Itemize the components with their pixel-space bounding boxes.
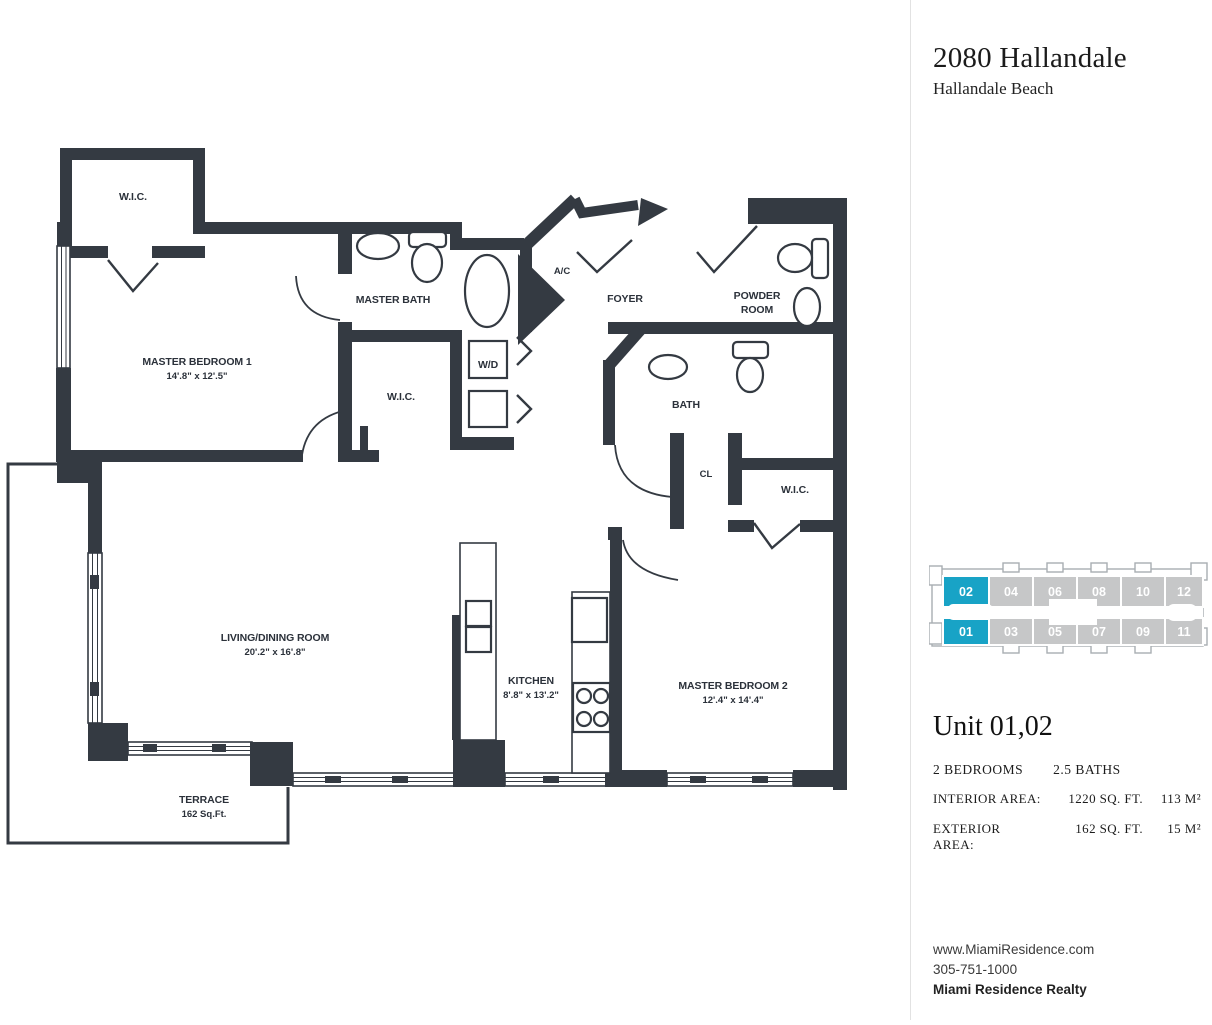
- room-dims-kitchen: 8'.8" x 13'.2": [503, 690, 559, 701]
- svg-text:06: 06: [1048, 585, 1062, 599]
- svg-text:02: 02: [959, 585, 973, 599]
- room-label-cl: CL: [700, 469, 713, 480]
- bath-fixtures: [649, 342, 768, 392]
- svg-text:09: 09: [1136, 625, 1150, 639]
- interior-area-sqft: 1220 SQ. FT.: [1043, 791, 1143, 807]
- floor-plan-svg: W.I.C. MASTER BEDROOM 1 14'.8" x 12'.5" …: [0, 0, 910, 1020]
- room-dims-master-bedroom-2: 12'.4" x 14'.4": [702, 695, 763, 706]
- room-label-wd: W/D: [478, 359, 499, 371]
- walls: [56, 148, 847, 790]
- svg-text:03: 03: [1004, 625, 1018, 639]
- keyplan: 02 04 06 08 10 12 01 03 05 07 09 11: [929, 560, 1209, 656]
- svg-text:10: 10: [1136, 585, 1150, 599]
- svg-text:08: 08: [1092, 585, 1106, 599]
- room-label-foyer: FOYER: [607, 293, 643, 305]
- svg-text:07: 07: [1092, 625, 1106, 639]
- floor-plan-panel: W.I.C. MASTER BEDROOM 1 14'.8" x 12'.5" …: [0, 0, 910, 1020]
- baths-value: 2.5 BATHS: [1053, 762, 1121, 777]
- contact-footer: www.MiamiResidence.com 305-751-1000 Miam…: [933, 940, 1094, 1000]
- room-area-terrace: 162 Sq.Ft.: [182, 809, 227, 820]
- exterior-area-row: EXTERIOR AREA: 162 SQ. FT. 15 M²: [933, 821, 1201, 853]
- room-label-powder-line1: POWDER: [734, 290, 781, 302]
- interior-area-m2: 113 M²: [1143, 791, 1201, 807]
- exterior-area-sqft: 162 SQ. FT.: [1043, 821, 1143, 853]
- svg-text:11: 11: [1177, 625, 1190, 639]
- unit-specs: 2 BEDROOMS2.5 BATHS INTERIOR AREA: 1220 …: [933, 762, 1201, 867]
- svg-text:05: 05: [1048, 625, 1062, 639]
- room-label-master-bedroom-2: MASTER BEDROOM 2: [678, 680, 788, 692]
- exterior-area-m2: 15 M²: [1143, 821, 1201, 853]
- room-label-kitchen: KITCHEN: [508, 675, 554, 687]
- room-label-terrace: TERRACE: [179, 794, 229, 806]
- phone-text: 305-751-1000: [933, 960, 1094, 980]
- bed-bath-row: 2 BEDROOMS2.5 BATHS: [933, 762, 1201, 778]
- company-name: Miami Residence Realty: [933, 980, 1094, 1000]
- kitchen-fixtures: [460, 341, 610, 773]
- building-subtitle: Hallandale Beach: [933, 79, 1053, 99]
- powder-room-fixtures: [778, 239, 828, 326]
- room-dims-master-bedroom-1: 14'.8" x 12'.5": [166, 371, 227, 382]
- room-label-living: LIVING/DINING ROOM: [221, 632, 330, 644]
- exterior-area-label: EXTERIOR AREA:: [933, 821, 1043, 853]
- room-label-master-bedroom-1: MASTER BEDROOM 1: [142, 356, 252, 368]
- room-label-ac: A/C: [554, 266, 571, 277]
- room-label-bath: BATH: [672, 399, 700, 411]
- room-dims-living: 20'.2" x 16'.8": [244, 647, 305, 658]
- bedrooms-value: 2 BEDROOMS: [933, 762, 1023, 777]
- svg-text:04: 04: [1004, 585, 1018, 599]
- interior-area-label: INTERIOR AREA:: [933, 791, 1043, 807]
- website-text: www.MiamiResidence.com: [933, 940, 1094, 960]
- svg-text:12: 12: [1177, 585, 1191, 599]
- room-label-master-bath: MASTER BATH: [356, 294, 431, 306]
- interior-area-row: INTERIOR AREA: 1220 SQ. FT. 113 M²: [933, 791, 1201, 807]
- unit-title: Unit 01,02: [933, 711, 1053, 743]
- room-label-wic3: W.I.C.: [781, 484, 809, 496]
- svg-text:01: 01: [959, 625, 973, 639]
- building-title: 2080 Hallandale: [933, 42, 1127, 75]
- room-label-wic1: W.I.C.: [119, 191, 147, 203]
- room-label-powder-line2: ROOM: [741, 304, 774, 316]
- info-sidebar: 2080 Hallandale Hallandale Beach: [911, 0, 1212, 1020]
- room-label-wic2: W.I.C.: [387, 391, 415, 403]
